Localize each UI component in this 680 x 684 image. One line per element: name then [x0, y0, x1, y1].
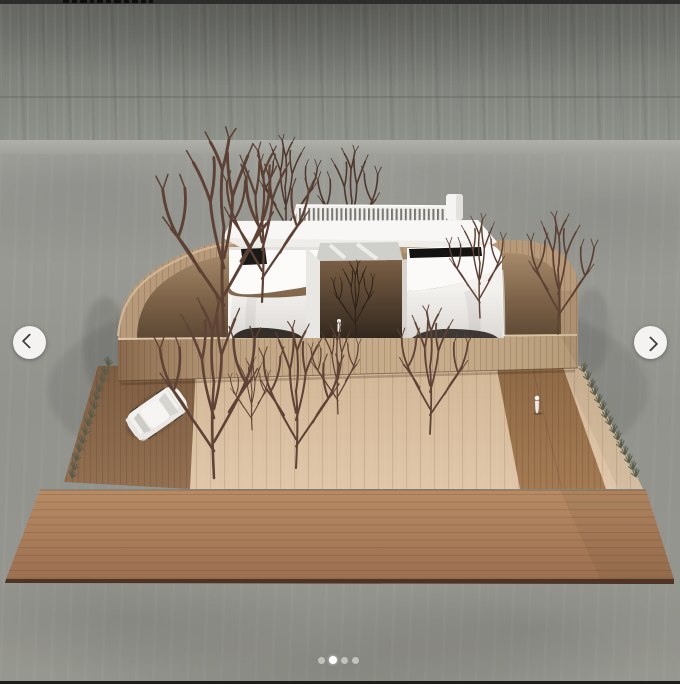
wood-deck [5, 490, 674, 584]
chevron-right-icon [643, 336, 659, 352]
atrium-figure [337, 319, 341, 332]
carousel-slide [0, 0, 680, 684]
carousel-prev-button[interactable] [13, 326, 46, 359]
atrium-interior [320, 260, 402, 338]
carousel-dot-3[interactable] [341, 657, 348, 664]
carousel-dot-1[interactable] [318, 657, 325, 664]
carousel-dots [318, 656, 359, 664]
cropped-text-remnant [0, 0, 680, 4]
chevron-left-icon [22, 333, 38, 349]
carousel-dot-2[interactable] [329, 656, 337, 664]
carousel-next-button[interactable] [634, 326, 667, 359]
carousel-dot-4[interactable] [352, 657, 359, 664]
model-photo [0, 0, 680, 684]
